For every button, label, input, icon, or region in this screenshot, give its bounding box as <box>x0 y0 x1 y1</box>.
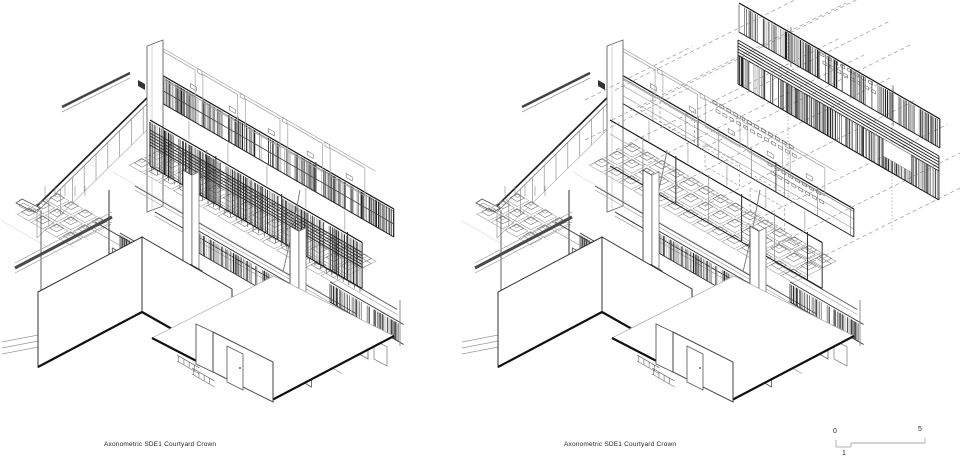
figure-caption-right: Axonometric SDE1 Courtyard Crown <box>564 441 676 448</box>
scale-label-one: 1 <box>842 450 846 457</box>
scale-label-zero: 0 <box>833 428 837 435</box>
axonometric-drawings-canvas <box>0 0 960 476</box>
scale-label-five: 5 <box>918 426 922 433</box>
figure-caption-left: Axonometric SDE1 Courtyard Crown <box>104 441 216 448</box>
axonometric-drawing-right <box>461 0 960 402</box>
axonometric-drawing-left <box>1 40 404 402</box>
scale-bar <box>836 438 925 447</box>
